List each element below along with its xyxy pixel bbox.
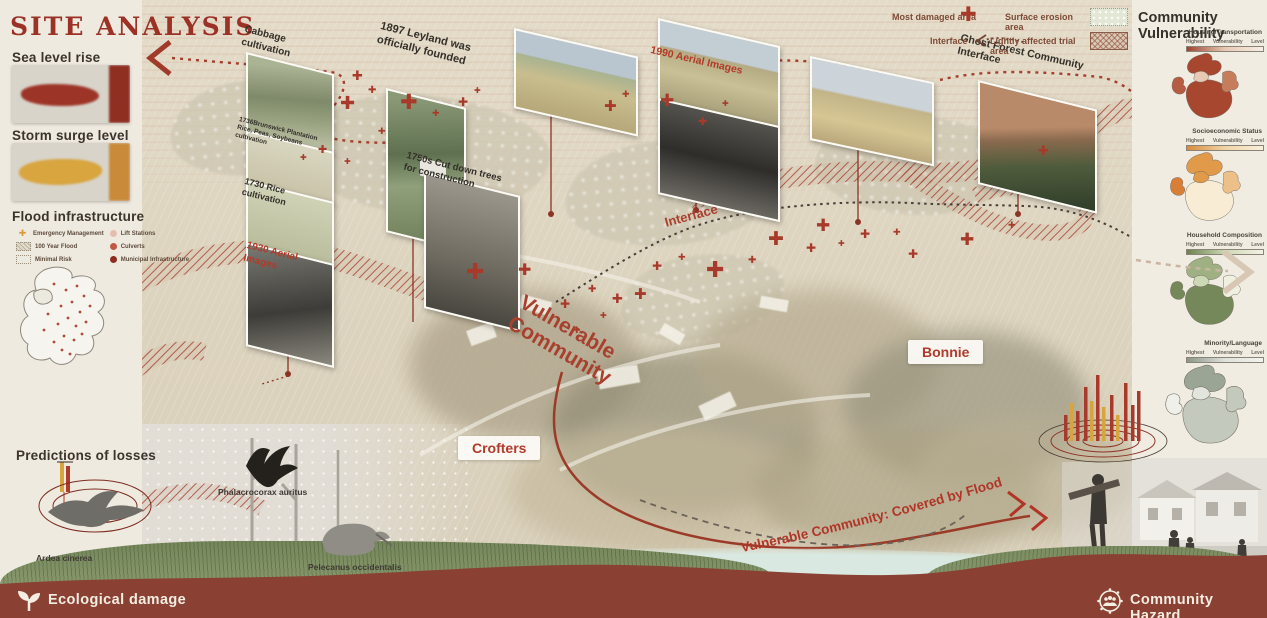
community-hazard-icon	[1096, 587, 1124, 615]
site-analysis-poster: ✚ ✚ ✚ ✚ ✚ ✚ ✚ ✚ ✚ ✚ ✚ ✚ ✚ ✚ ✚ ✚ ✚ ✚ ✚ ✚ …	[0, 0, 1267, 618]
footer-band	[0, 0, 1267, 618]
ecological-damage-label: Ecological damage	[48, 592, 186, 608]
ecological-damage-icon	[16, 589, 42, 613]
community-hazard-label: Community Hazard	[1130, 592, 1267, 618]
